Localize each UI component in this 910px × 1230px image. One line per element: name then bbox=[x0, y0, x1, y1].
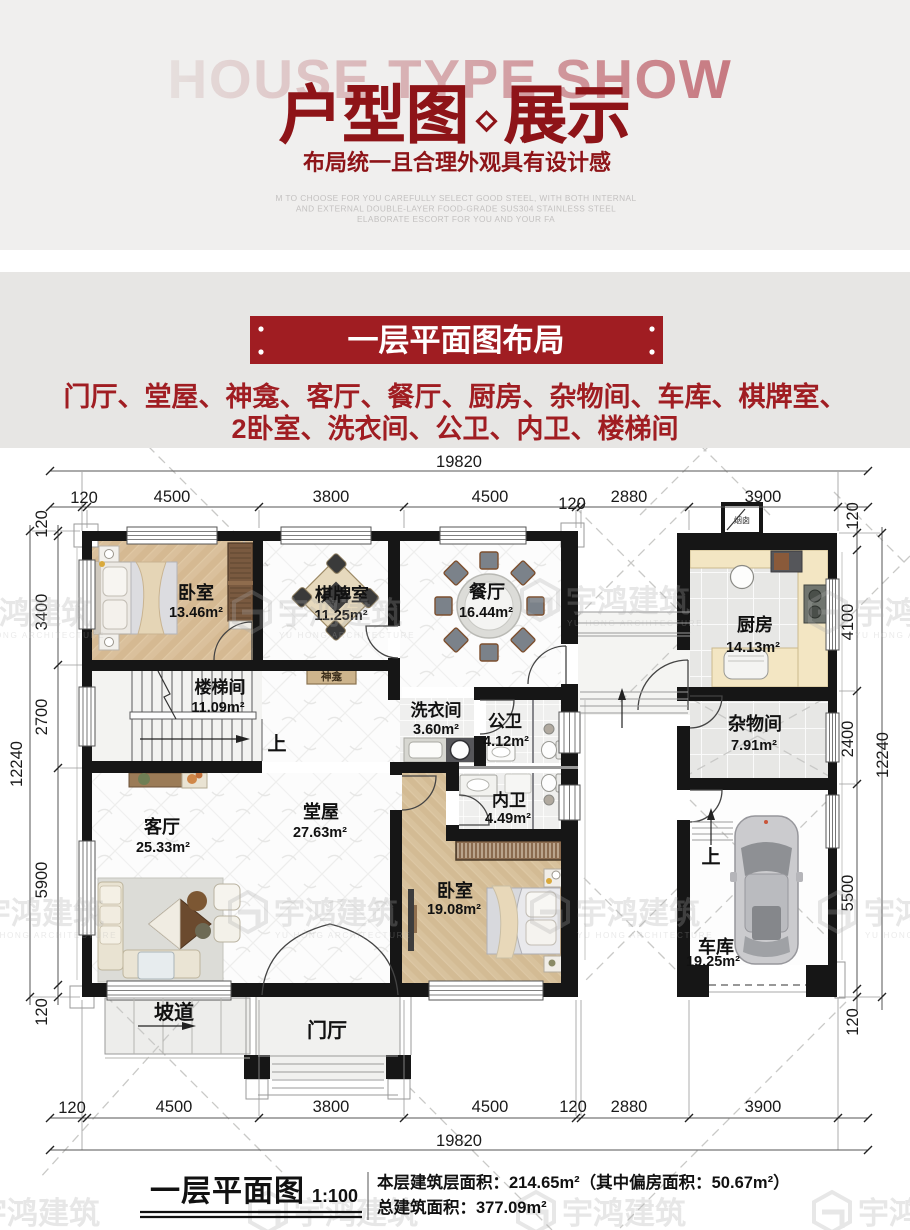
svg-text:120: 120 bbox=[559, 1098, 587, 1116]
svg-text:19820: 19820 bbox=[436, 1132, 482, 1150]
svg-text:门厅: 门厅 bbox=[307, 1018, 347, 1042]
svg-text:1:100: 1:100 bbox=[312, 1186, 358, 1206]
svg-text:27.63m²: 27.63m² bbox=[293, 825, 347, 841]
svg-text:烟囱: 烟囱 bbox=[734, 515, 750, 525]
svg-text:楼梯间: 楼梯间 bbox=[195, 677, 246, 697]
svg-text:4.49m²: 4.49m² bbox=[485, 811, 531, 827]
svg-text:120: 120 bbox=[33, 998, 51, 1026]
svg-text:120: 120 bbox=[33, 510, 51, 538]
svg-text:4.12m²: 4.12m² bbox=[483, 734, 529, 750]
svg-text:本层建筑层面积：214.65m²（其中偏房面积：50.67m: 本层建筑层面积：214.65m²（其中偏房面积：50.67m²） bbox=[377, 1172, 790, 1192]
svg-text:餐厅: 餐厅 bbox=[468, 581, 505, 602]
svg-text:3800: 3800 bbox=[313, 1098, 350, 1116]
svg-text:19820: 19820 bbox=[436, 453, 482, 471]
svg-text:5900: 5900 bbox=[33, 862, 51, 899]
svg-text:16.44m²: 16.44m² bbox=[459, 605, 513, 621]
svg-text:总建筑面积：377.09m²: 总建筑面积：377.09m² bbox=[377, 1197, 547, 1217]
svg-text:120: 120 bbox=[844, 1008, 862, 1036]
svg-text:12240: 12240 bbox=[8, 741, 26, 787]
svg-text:12240: 12240 bbox=[874, 732, 892, 778]
svg-text:4500: 4500 bbox=[472, 488, 509, 506]
svg-text:杂物间: 杂物间 bbox=[728, 713, 782, 734]
svg-text:4500: 4500 bbox=[156, 1098, 193, 1116]
svg-text:一层平面图: 一层平面图 bbox=[150, 1175, 305, 1208]
svg-text:门厅、堂屋、神龛、客厅、餐厅、厨房、杂物间、车库、棋牌室、: 门厅、堂屋、神龛、客厅、餐厅、厨房、杂物间、车库、棋牌室、 bbox=[64, 381, 847, 412]
svg-text:坡道: 坡道 bbox=[154, 1000, 194, 1024]
svg-text:一层平面图布局: 一层平面图布局 bbox=[348, 323, 565, 358]
svg-text:4500: 4500 bbox=[154, 488, 191, 506]
svg-text:卧室: 卧室 bbox=[437, 880, 473, 901]
svg-text:洗衣间: 洗衣间 bbox=[411, 700, 462, 720]
svg-text:厨房: 厨房 bbox=[737, 614, 773, 635]
svg-text:卧室: 卧室 bbox=[178, 582, 214, 603]
svg-text:客厅: 客厅 bbox=[144, 816, 180, 837]
svg-text:14.13m²: 14.13m² bbox=[726, 640, 780, 656]
svg-text:120: 120 bbox=[844, 502, 862, 530]
svg-text:堂屋: 堂屋 bbox=[303, 801, 339, 822]
svg-text:布局统一且合理外观具有设计感: 布局统一且合理外观具有设计感 bbox=[303, 150, 611, 175]
svg-text:19.25m²: 19.25m² bbox=[686, 954, 740, 970]
svg-text:120: 120 bbox=[558, 495, 586, 513]
svg-text:13.46m²: 13.46m² bbox=[169, 605, 223, 621]
svg-text:120: 120 bbox=[58, 1099, 86, 1117]
svg-text:2卧室、洗衣间、公卫、内卫、楼梯间: 2卧室、洗衣间、公卫、内卫、楼梯间 bbox=[231, 413, 678, 444]
svg-text:M TO CHOOSE FOR YOU CAREFULLY: M TO CHOOSE FOR YOU CAREFULLY SELECT GOO… bbox=[275, 193, 636, 203]
svg-text:2880: 2880 bbox=[611, 488, 648, 506]
svg-text:3.60m²: 3.60m² bbox=[413, 722, 459, 738]
svg-text:神龛: 神龛 bbox=[321, 670, 342, 683]
svg-text:4500: 4500 bbox=[472, 1098, 509, 1116]
svg-text:公卫: 公卫 bbox=[488, 712, 522, 731]
svg-text:ELABORATE ESCORT FOR YOU AND Y: ELABORATE ESCORT FOR YOU AND YOUR FA bbox=[357, 214, 555, 224]
svg-text:120: 120 bbox=[70, 489, 98, 507]
svg-text:3900: 3900 bbox=[745, 1098, 782, 1116]
svg-text:25.33m²: 25.33m² bbox=[136, 840, 190, 856]
svg-text:内卫: 内卫 bbox=[492, 790, 526, 810]
svg-text:2880: 2880 bbox=[611, 1098, 648, 1116]
svg-text:2700: 2700 bbox=[33, 699, 51, 736]
svg-text:AND EXTERNAL DOUBLE-LAYER FOOD: AND EXTERNAL DOUBLE-LAYER FOOD-GRADE SUS… bbox=[296, 204, 616, 214]
svg-text:11.09m²: 11.09m² bbox=[191, 700, 244, 716]
svg-text:19.08m²: 19.08m² bbox=[427, 902, 481, 918]
svg-text:7.91m²: 7.91m² bbox=[731, 738, 777, 754]
svg-text:户型图◇展示: 户型图◇展示 bbox=[279, 81, 631, 151]
svg-text:3800: 3800 bbox=[313, 488, 350, 506]
svg-text:3900: 3900 bbox=[745, 488, 782, 506]
svg-text:上: 上 bbox=[701, 846, 720, 868]
svg-text:上: 上 bbox=[267, 733, 286, 755]
svg-text:2400: 2400 bbox=[839, 721, 857, 758]
